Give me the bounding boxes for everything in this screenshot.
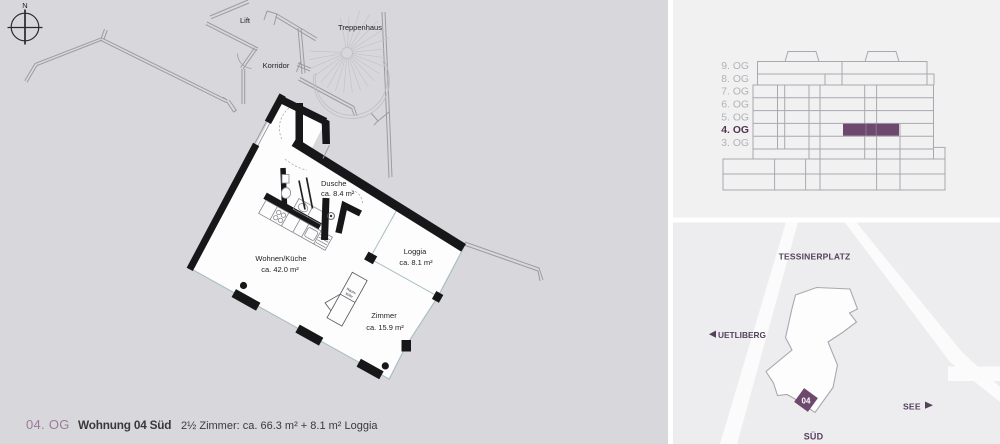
- svg-text:6. OG: 6. OG: [721, 100, 749, 111]
- svg-text:TESSINERPLATZ: TESSINERPLATZ: [779, 252, 851, 262]
- svg-text:7. OG: 7. OG: [721, 87, 749, 98]
- svg-text:5. OG: 5. OG: [721, 112, 749, 123]
- svg-text:SEE: SEE: [903, 402, 921, 412]
- svg-text:Dusche: Dusche: [321, 179, 346, 188]
- svg-text:Korridor: Korridor: [263, 61, 290, 70]
- svg-text:N: N: [22, 1, 27, 10]
- svg-text:Wohnen/Küche: Wohnen/Küche: [255, 254, 306, 263]
- svg-text:Wohnung 04 Süd: Wohnung 04 Süd: [78, 418, 171, 432]
- svg-text:UETLIBERG: UETLIBERG: [718, 330, 766, 340]
- svg-text:8. OG: 8. OG: [721, 74, 749, 85]
- svg-text:Treppenhaus: Treppenhaus: [338, 23, 382, 32]
- svg-text:04: 04: [802, 397, 811, 406]
- svg-text:Loggia: Loggia: [404, 247, 427, 256]
- svg-text:ca. 8.4 m²: ca. 8.4 m²: [321, 189, 355, 198]
- svg-text:Zimmer: Zimmer: [371, 311, 397, 320]
- svg-text:Lift: Lift: [240, 16, 251, 25]
- svg-text:04. OG: 04. OG: [26, 417, 70, 432]
- svg-text:2½ Zimmer: ca. 66.3 m² + 8.1 m: 2½ Zimmer: ca. 66.3 m² + 8.1 m² Loggia: [181, 420, 378, 432]
- svg-text:ca. 42.0 m²: ca. 42.0 m²: [261, 265, 299, 274]
- svg-text:ca. 8.1 m²: ca. 8.1 m²: [399, 258, 433, 267]
- svg-text:9. OG: 9. OG: [721, 61, 749, 72]
- svg-text:SÜD: SÜD: [804, 431, 824, 441]
- svg-text:4. OG: 4. OG: [721, 125, 749, 136]
- svg-text:ca. 15.9 m²: ca. 15.9 m²: [366, 323, 404, 332]
- svg-text:3. OG: 3. OG: [721, 138, 749, 149]
